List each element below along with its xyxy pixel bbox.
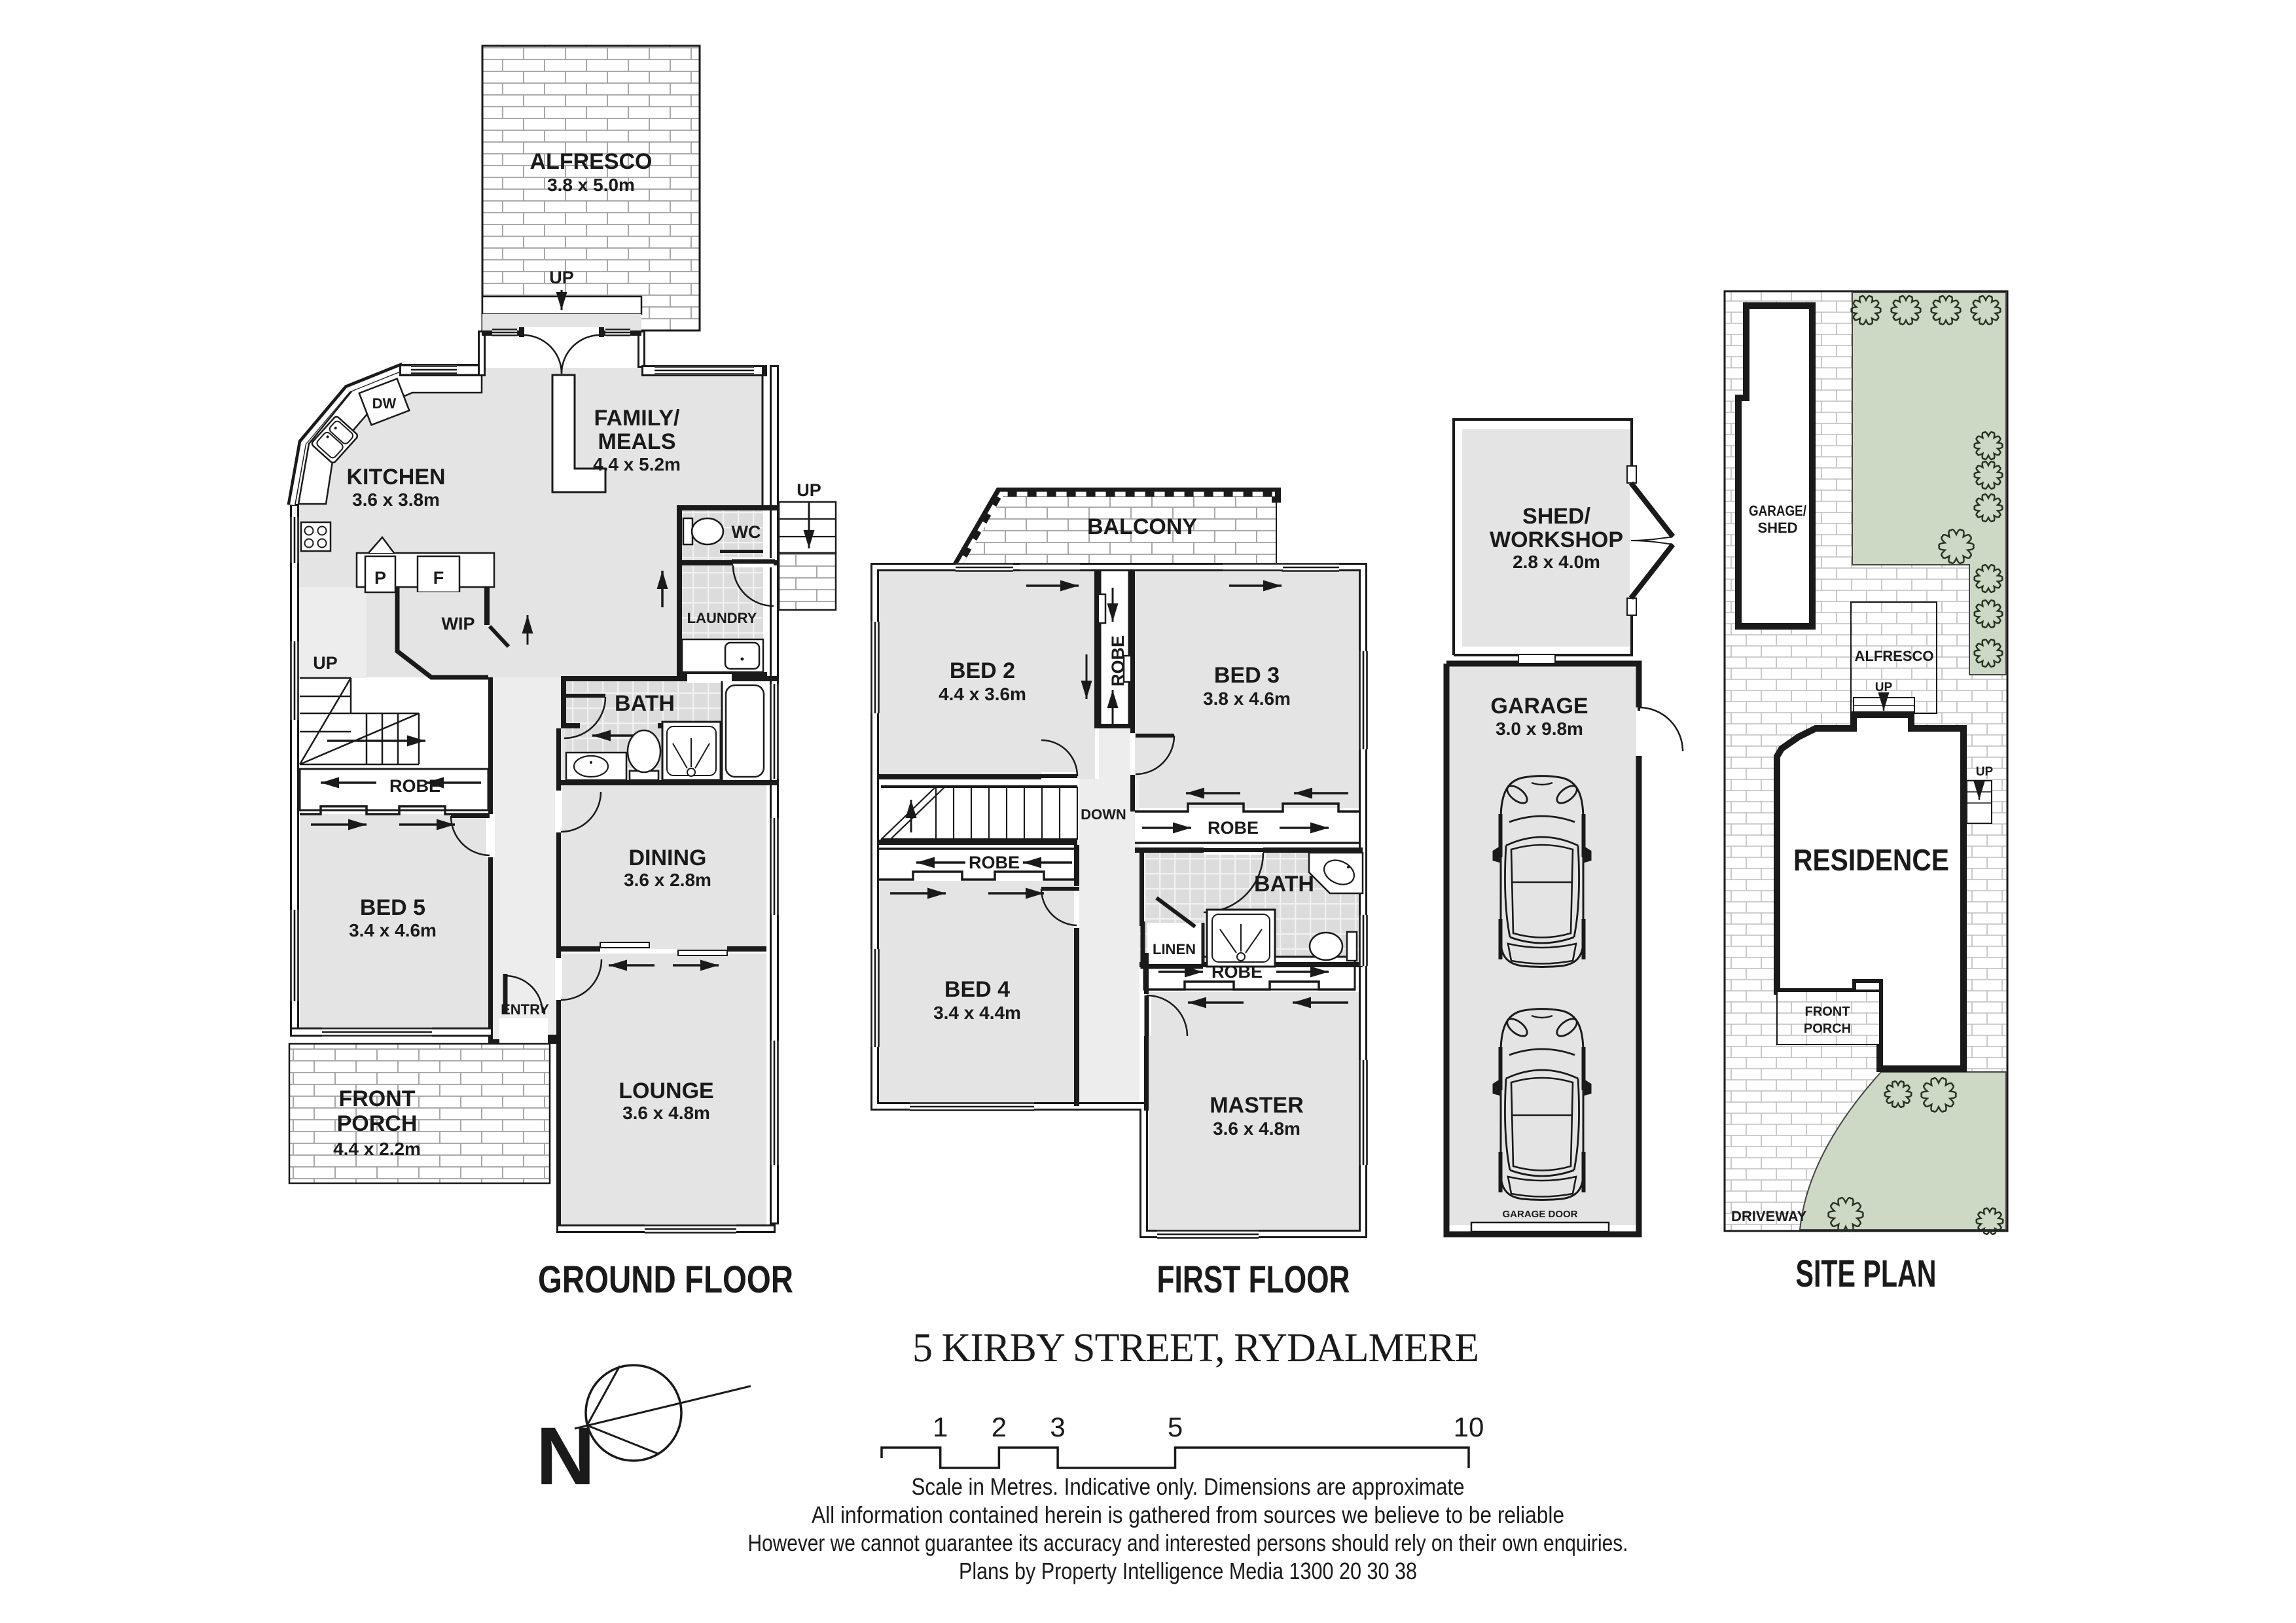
svg-text:UP: UP [797, 480, 821, 500]
svg-text:BED 2: BED 2 [950, 658, 1015, 683]
svg-text:3.8 x 4.6m: 3.8 x 4.6m [1203, 688, 1291, 709]
svg-text:ROBE: ROBE [1208, 818, 1259, 838]
svg-text:FIRST FLOOR: FIRST FLOOR [1157, 1258, 1350, 1301]
svg-text:3.6 x 3.8m: 3.6 x 3.8m [352, 490, 440, 510]
svg-text:MEALS: MEALS [598, 429, 676, 454]
svg-text:LOUNGE: LOUNGE [619, 1079, 713, 1103]
svg-text:3.0 x 9.8m: 3.0 x 9.8m [1496, 719, 1583, 739]
svg-text:WIP: WIP [442, 614, 475, 633]
svg-text:4.4 x 3.6m: 4.4 x 3.6m [939, 684, 1026, 704]
svg-text:GARAGE DOOR: GARAGE DOOR [1502, 1209, 1577, 1220]
svg-text:WORKSHOP: WORKSHOP [1490, 527, 1623, 552]
svg-text:Plans by Property Intelligence: Plans by Property Intelligence Media 130… [959, 1558, 1417, 1584]
svg-text:3.8 x 5.0m: 3.8 x 5.0m [547, 175, 635, 195]
svg-text:ALFRESCO: ALFRESCO [1855, 648, 1934, 664]
svg-text:2.8 x 4.0m: 2.8 x 4.0m [1513, 552, 1600, 572]
svg-text:BALCONY: BALCONY [1087, 514, 1197, 539]
svg-text:4.4 x 2.2m: 4.4 x 2.2m [333, 1139, 421, 1159]
svg-text:3.4 x 4.4m: 3.4 x 4.4m [933, 1003, 1021, 1023]
svg-text:UP: UP [549, 268, 574, 287]
svg-text:ROBE: ROBE [1108, 635, 1128, 687]
svg-text:DW: DW [372, 395, 397, 412]
svg-text:2: 2 [992, 1412, 1007, 1442]
svg-text:GARAGE: GARAGE [1490, 694, 1588, 719]
svg-text:FRONT: FRONT [1805, 1005, 1850, 1019]
svg-text:DOWN: DOWN [1081, 806, 1126, 823]
svg-text:1: 1 [933, 1412, 948, 1442]
svg-text:FAMILY/: FAMILY/ [594, 406, 681, 431]
svg-text:MASTER: MASTER [1210, 1093, 1304, 1118]
svg-text:UP: UP [1976, 765, 1994, 779]
svg-text:BATH: BATH [615, 691, 675, 716]
svg-text:ROBE: ROBE [389, 776, 440, 796]
svg-text:ALFRESCO: ALFRESCO [530, 149, 653, 174]
svg-text:WC: WC [732, 522, 761, 542]
svg-text:ENTRY: ENTRY [501, 1001, 549, 1018]
svg-text:3.6 x 4.8m: 3.6 x 4.8m [1213, 1118, 1300, 1139]
svg-text:DINING: DINING [629, 846, 707, 870]
svg-text:BED 3: BED 3 [1214, 663, 1280, 688]
svg-text:KITCHEN: KITCHEN [346, 465, 445, 490]
svg-text:All information contained here: All information contained herein is gath… [812, 1501, 1564, 1528]
svg-text:F: F [433, 568, 444, 588]
svg-text:SHED: SHED [1757, 520, 1797, 536]
svg-text:3.4 x 4.6m: 3.4 x 4.6m [349, 920, 437, 940]
svg-text:5 KIRBY STREET, RYDALMERE: 5 KIRBY STREET, RYDALMERE [912, 1326, 1479, 1370]
svg-text:DRIVEWAY: DRIVEWAY [1731, 1208, 1807, 1224]
svg-text:LINEN: LINEN [1153, 941, 1196, 957]
svg-text:GARAGE/: GARAGE/ [1749, 503, 1806, 519]
svg-text:3.6 x 2.8m: 3.6 x 2.8m [624, 870, 711, 890]
svg-text:N: N [536, 1411, 595, 1502]
svg-text:10: 10 [1454, 1412, 1484, 1442]
svg-text:3.6 x 4.8m: 3.6 x 4.8m [622, 1103, 710, 1123]
svg-text:P: P [374, 568, 386, 588]
svg-text:UP: UP [1875, 681, 1893, 694]
svg-text:ROBE: ROBE [969, 853, 1020, 872]
svg-text:5: 5 [1168, 1412, 1183, 1442]
svg-text:BED 5: BED 5 [360, 895, 425, 920]
svg-text:SHED/: SHED/ [1522, 504, 1590, 529]
svg-text:GROUND FLOOR: GROUND FLOOR [538, 1258, 793, 1301]
svg-text:Scale in Metres. Indicative on: Scale in Metres. Indicative only. Dimens… [912, 1473, 1465, 1500]
svg-text:SITE PLAN: SITE PLAN [1796, 1253, 1937, 1295]
svg-text:However we cannot guarantee it: However we cannot guarantee its accuracy… [748, 1529, 1628, 1556]
svg-text:LAUNDRY: LAUNDRY [687, 610, 757, 626]
svg-text:FRONT: FRONT [338, 1086, 415, 1111]
svg-text:PORCH: PORCH [337, 1111, 418, 1136]
svg-text:4.4 x 5.2m: 4.4 x 5.2m [593, 454, 681, 474]
svg-text:UP: UP [313, 653, 338, 673]
svg-text:BATH: BATH [1254, 872, 1314, 897]
svg-text:PORCH: PORCH [1804, 1022, 1851, 1036]
svg-text:RESIDENCE: RESIDENCE [1793, 843, 1949, 877]
svg-text:3: 3 [1050, 1412, 1065, 1442]
svg-text:BED 4: BED 4 [944, 977, 1010, 1002]
